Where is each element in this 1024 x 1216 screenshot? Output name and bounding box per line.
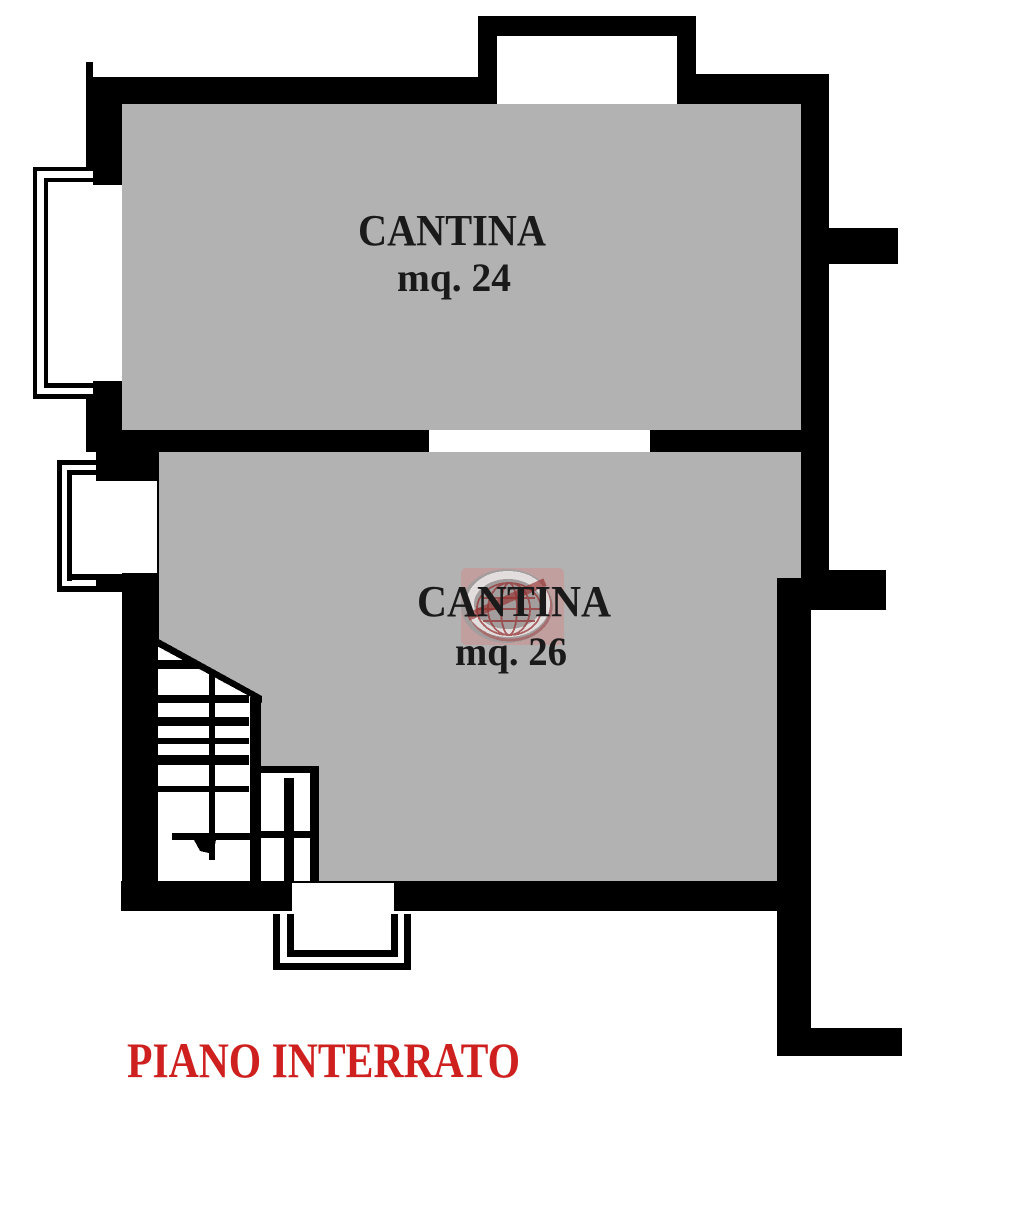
svg-text:CANTINA: CANTINA <box>417 577 611 626</box>
svg-text:CANTINA: CANTINA <box>358 206 546 255</box>
svg-text:mq. 26: mq. 26 <box>455 629 567 674</box>
svg-text:PIANO INTERRATO: PIANO INTERRATO <box>127 1032 520 1088</box>
svg-text:mq. 24: mq. 24 <box>397 255 511 300</box>
